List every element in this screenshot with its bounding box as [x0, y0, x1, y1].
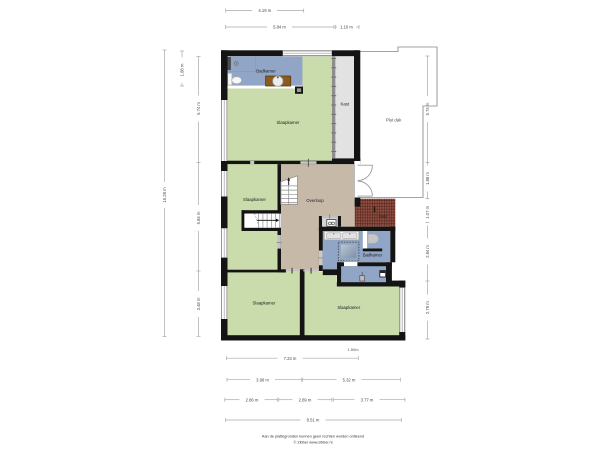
- svg-text:7.23 m: 7.23 m: [284, 356, 297, 361]
- svg-text:1.88 m: 1.88 m: [180, 63, 185, 76]
- svg-text:5.32 m: 5.32 m: [343, 377, 356, 382]
- svg-text:Plat dak: Plat dak: [386, 118, 402, 123]
- svg-text:Overloop: Overloop: [306, 198, 324, 203]
- svg-text:2.86 m: 2.86 m: [246, 397, 259, 402]
- svg-text:2.84 m: 2.84 m: [425, 245, 430, 258]
- svg-text:1.10 m: 1.10 m: [340, 25, 353, 30]
- svg-text:1.50m: 1.50m: [347, 347, 359, 352]
- svg-text:Slaapkamer: Slaapkamer: [253, 301, 276, 306]
- svg-text:4.19 m: 4.19 m: [258, 8, 271, 13]
- svg-text:5.84 m: 5.84 m: [273, 25, 286, 30]
- svg-text:8.51 m: 8.51 m: [307, 418, 320, 423]
- svg-text:5.74 m: 5.74 m: [425, 102, 430, 115]
- svg-text:15.28 m: 15.28 m: [162, 187, 167, 203]
- svg-text:Slaapkamer: Slaapkamer: [337, 305, 360, 310]
- svg-text:Kast: Kast: [379, 214, 388, 219]
- svg-text:Badkamer: Badkamer: [363, 253, 383, 258]
- svg-text:Slaapkamer: Slaapkamer: [243, 197, 266, 202]
- svg-text:© Zibber www.zibber.nl: © Zibber www.zibber.nl: [294, 440, 333, 444]
- svg-text:3.77 m: 3.77 m: [361, 397, 374, 402]
- svg-text:1.07 m: 1.07 m: [425, 205, 430, 218]
- svg-text:3.48 m: 3.48 m: [196, 297, 201, 310]
- svg-text:5.84 m: 5.84 m: [196, 211, 201, 224]
- svg-text:5.74 m: 5.74 m: [196, 102, 201, 115]
- svg-text:3.96 m: 3.96 m: [256, 377, 269, 382]
- svg-text:Aan de plattegronden kunnen ge: Aan de plattegronden kunnen geen rechten…: [262, 435, 364, 439]
- svg-text:Slaapkamer: Slaapkamer: [277, 120, 300, 125]
- svg-text:1.88 m: 1.88 m: [425, 172, 430, 185]
- svg-text:Kast: Kast: [340, 102, 349, 107]
- svg-text:2.89 m: 2.89 m: [299, 397, 312, 402]
- svg-text:2.79 m: 2.79 m: [425, 301, 430, 314]
- svg-text:Badkamer: Badkamer: [256, 69, 276, 74]
